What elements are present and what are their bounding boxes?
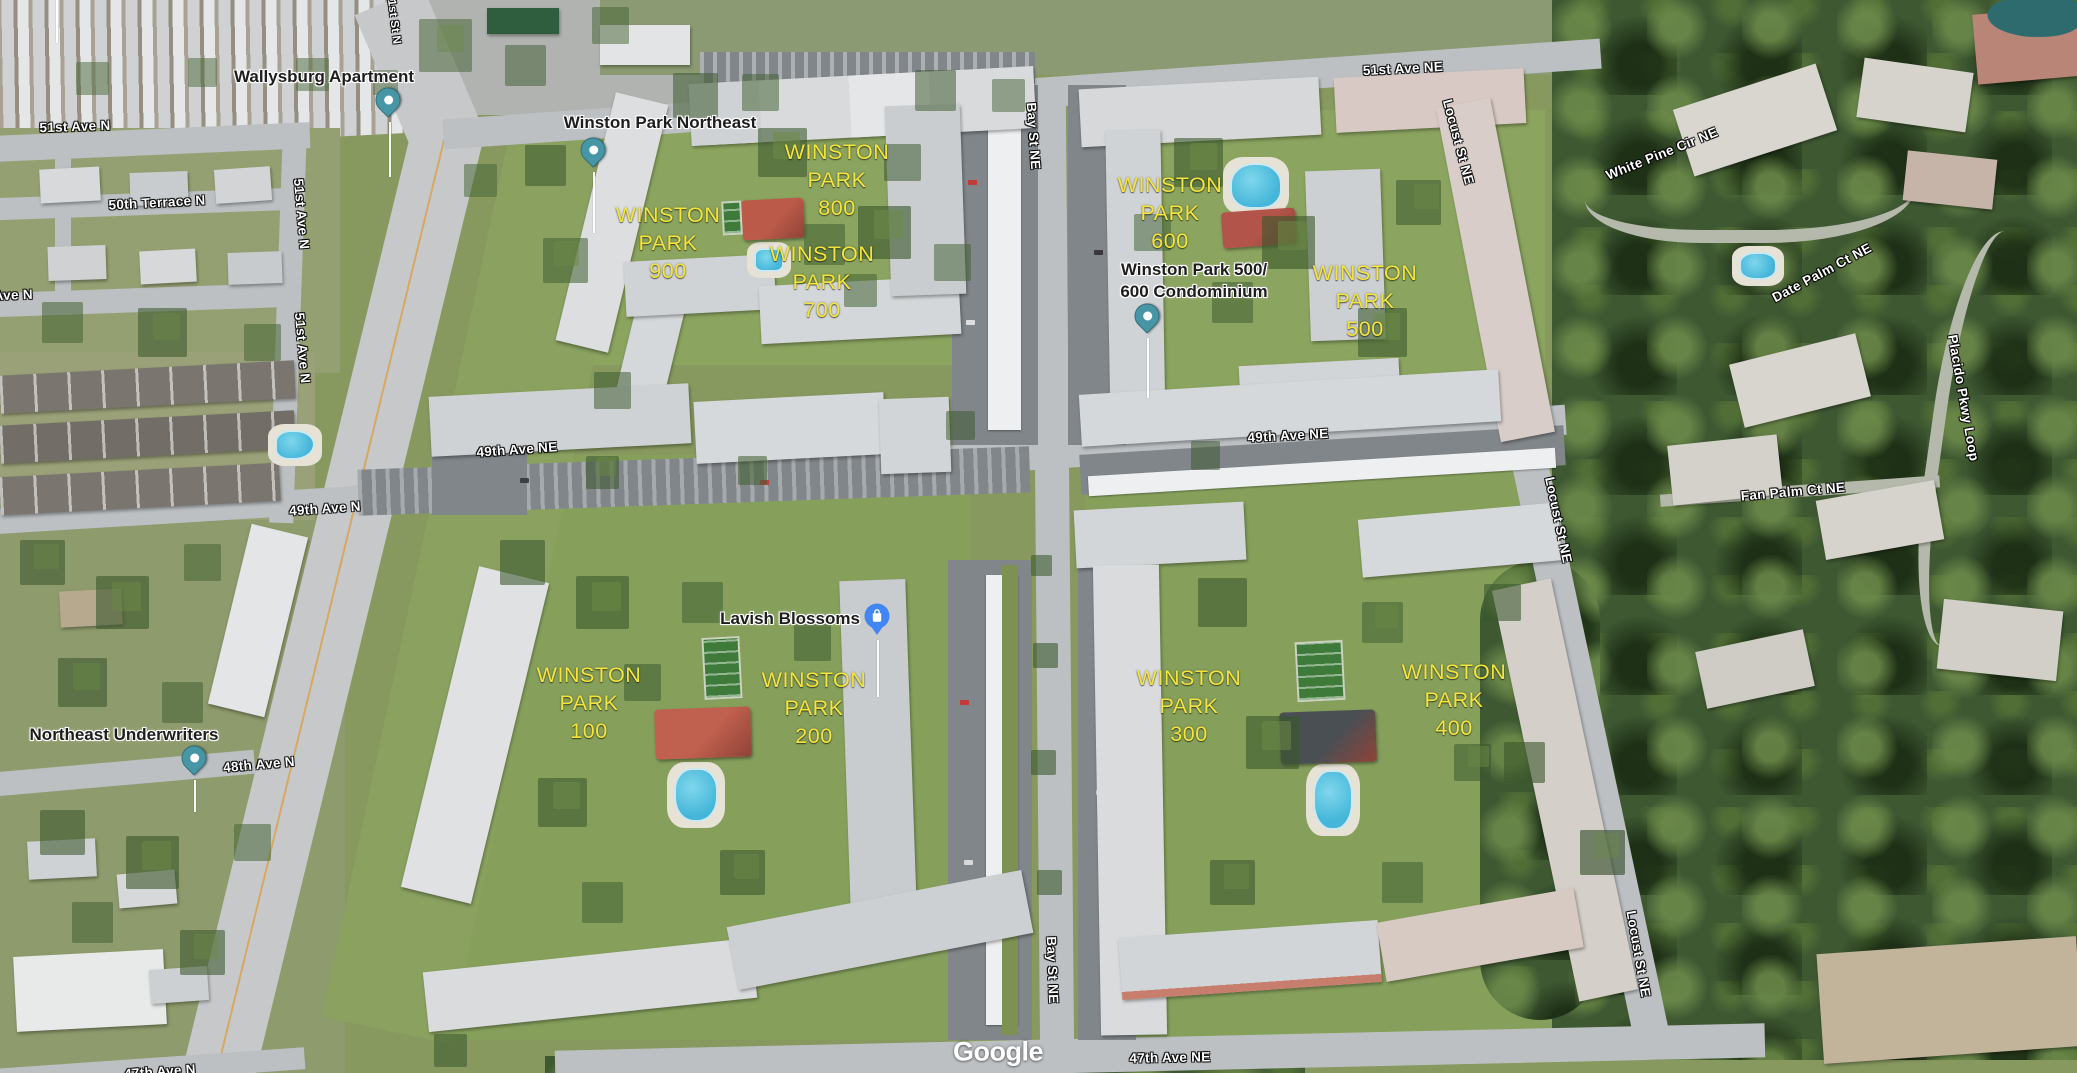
district-label-winston-park-400[interactable]: WINSTON PARK 400 (1402, 658, 1507, 742)
place-label-lavish-blossoms[interactable]: Lavish Blossoms (720, 608, 860, 630)
car (964, 860, 973, 865)
house-roof (139, 249, 197, 285)
car (960, 700, 969, 705)
pin-stem (1147, 338, 1149, 398)
pin-stem (194, 780, 196, 812)
district-label-winston-park-900[interactable]: WINSTON PARK 900 (616, 201, 721, 285)
district-label-winston-park-100[interactable]: WINSTON PARK 100 (537, 661, 642, 745)
car (760, 480, 769, 485)
pin-stem (877, 640, 879, 697)
house-roof (59, 588, 123, 627)
district-label-winston-park-300[interactable]: WINSTON PARK 300 (1137, 664, 1242, 748)
sports-court (701, 636, 742, 700)
swimming-pool (1739, 252, 1777, 280)
car (1094, 250, 1103, 255)
carport-row (988, 95, 1021, 430)
district-label-winston-park-600[interactable]: WINSTON PARK 600 (1118, 171, 1223, 255)
place-label-winston-park-500-600-condominium[interactable]: Winston Park 500/ 600 Condominium (1120, 259, 1267, 303)
building-roof (600, 25, 690, 65)
car (966, 320, 975, 325)
house-roof (27, 838, 97, 880)
clubhouse-roof (1221, 207, 1297, 248)
pin-stem (593, 172, 595, 233)
house-roof (227, 251, 282, 285)
swimming-pool (674, 768, 718, 822)
sports-court (721, 200, 743, 235)
google-watermark: Google (953, 1037, 1043, 1068)
building-roof (1937, 599, 2064, 681)
building-roof (1816, 936, 2077, 1064)
house-roof (39, 166, 101, 203)
building-roof (429, 383, 692, 457)
pavilion-green-roof (487, 8, 559, 34)
sports-court (1294, 640, 1345, 702)
bay-median-strip (1002, 565, 1018, 1035)
building-roof (885, 104, 967, 297)
house-roof (117, 870, 178, 909)
district-label-winston-park-800[interactable]: WINSTON PARK 800 (785, 138, 890, 222)
building-roof (1903, 150, 1998, 209)
pin-stem (56, 0, 58, 43)
district-label-winston-park-700[interactable]: WINSTON PARK 700 (770, 240, 875, 324)
car (520, 478, 529, 483)
building-roof (694, 392, 887, 464)
house-roof (149, 966, 209, 1004)
road-minor-street-west (55, 135, 71, 315)
swimming-pool (1313, 770, 1353, 830)
street-label-bay-st-ne: Bay St NE (1043, 936, 1061, 1004)
place-label-wallysburg-apartment[interactable]: Wallysburg Apartment (234, 66, 414, 88)
street-label-50th-ave-n: 50th Ave N (0, 287, 33, 305)
place-label-northeast-underwriters[interactable]: Northeast Underwriters (30, 724, 219, 746)
clubhouse-roof (1279, 709, 1377, 764)
clubhouse-roof (654, 706, 752, 759)
house-roof (214, 166, 272, 204)
district-label-winston-park-500[interactable]: WINSTON PARK 500 (1313, 259, 1418, 343)
satellite-map[interactable]: Google 51st Ave N50th Terrace N50th Ave … (0, 0, 2077, 1073)
pin-stem (389, 122, 391, 177)
swimming-pool (1230, 163, 1282, 209)
house-roof (47, 245, 106, 281)
district-label-winston-park-200[interactable]: WINSTON PARK 200 (762, 666, 867, 750)
street-label-47th-ave-ne: 47th Ave NE (1129, 1049, 1210, 1066)
place-label-winston-park-northeast[interactable]: Winston Park Northeast (564, 112, 757, 134)
car (968, 180, 977, 185)
building-roof (1074, 502, 1247, 569)
tree-canopy-highlight (0, 0, 1, 1)
shopping-bag-pin-icon[interactable] (864, 603, 890, 629)
street-label-51st-ave-n: 51st Ave N (39, 118, 111, 136)
building-roof (13, 949, 167, 1032)
building-roof (879, 397, 952, 474)
